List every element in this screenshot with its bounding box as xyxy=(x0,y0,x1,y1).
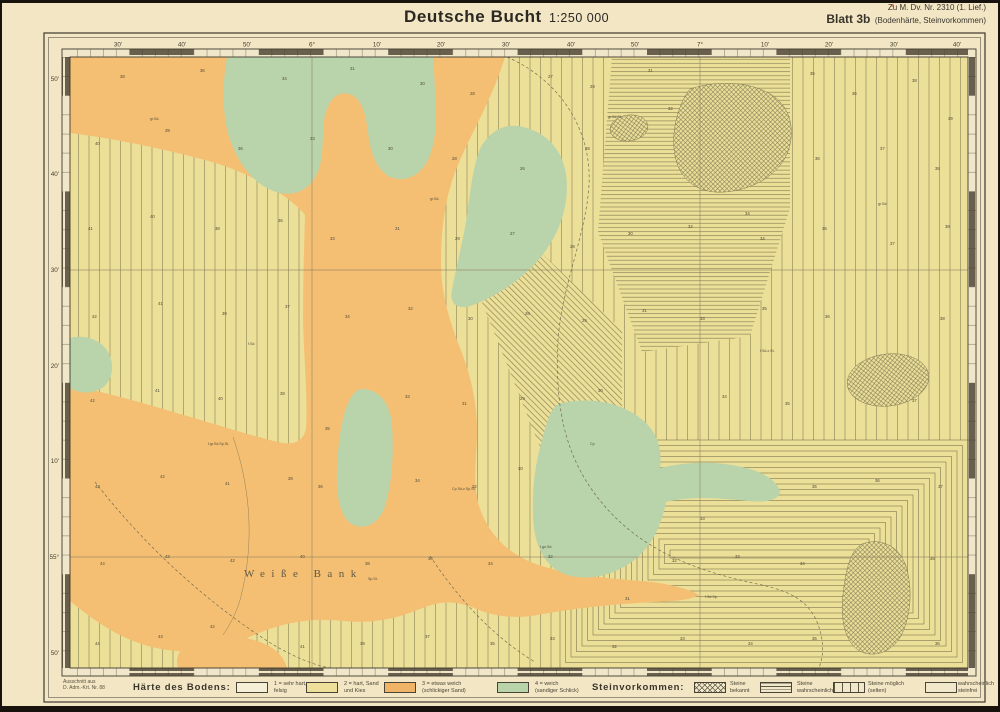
hardness-swatch-1 xyxy=(236,682,268,693)
stones-swatch-3 xyxy=(833,682,865,693)
stones-swatch-2 xyxy=(760,682,792,693)
photo-edge-left xyxy=(0,0,2,712)
photo-edge-top xyxy=(0,0,1000,3)
hardness-label-4: 4 = weich(sandiger Schlick) xyxy=(535,681,579,694)
stones-swatch-4 xyxy=(925,682,957,693)
stones-label-3: Steine möglich(selten) xyxy=(868,681,904,694)
hardness-swatch-2 xyxy=(306,682,338,693)
photo-edge-bottom xyxy=(0,706,1000,712)
source-note-line2: D. Adm.-Krt. Nr. 88 xyxy=(63,685,105,691)
stones-legend-title: Steinvorkommen: xyxy=(592,682,684,693)
source-note: Ausschnitt aus D. Adm.-Krt. Nr. 88 xyxy=(63,679,105,691)
legend: Ausschnitt aus D. Adm.-Krt. Nr. 88 Härte… xyxy=(0,0,1000,712)
map-sheet: { "header": { "title": "Deutsche Bucht",… xyxy=(0,0,1000,712)
hardness-label-2: 2 = hart, Sandund Kies xyxy=(344,681,379,694)
hardness-swatch-3 xyxy=(384,682,416,693)
stones-label-2: Steinewahrscheinlich xyxy=(797,681,833,694)
stones-label-1: Steinebekannt xyxy=(730,681,750,694)
hardness-label-3: 3 = etwas weich(schlickiger Sand) xyxy=(422,681,466,694)
hardness-label-1: 1 = sehr hart,felsig xyxy=(274,681,307,694)
hardness-swatch-4 xyxy=(497,682,529,693)
hardness-legend-title: Härte des Bodens: xyxy=(133,682,231,693)
stones-swatch-1 xyxy=(694,682,726,693)
stones-label-4: wahrscheinlichsteinfrei xyxy=(958,681,994,694)
